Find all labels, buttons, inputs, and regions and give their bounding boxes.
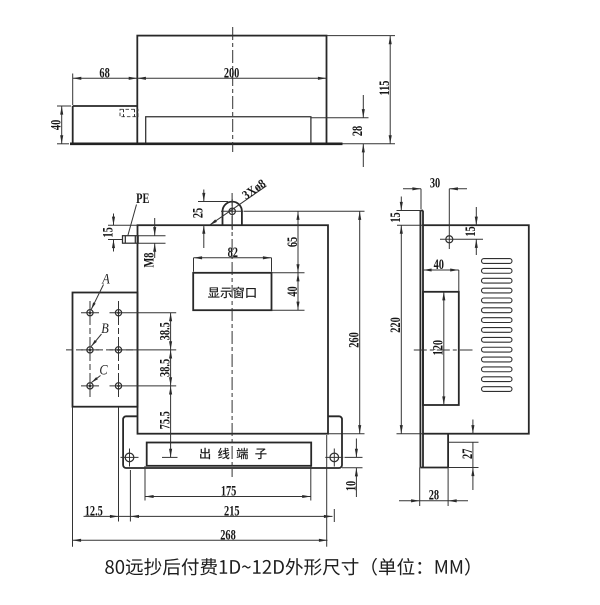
svg-text:200: 200 (224, 65, 240, 81)
svg-text:12.5: 12.5 (85, 503, 103, 519)
svg-text:15: 15 (462, 226, 478, 236)
svg-text:30: 30 (430, 175, 440, 191)
svg-text:82: 82 (228, 244, 238, 260)
svg-text:220: 220 (387, 317, 403, 333)
svg-text:215: 215 (224, 503, 240, 519)
svg-text:40: 40 (48, 120, 64, 130)
svg-text:25: 25 (190, 208, 206, 218)
svg-text:175: 175 (221, 483, 237, 499)
svg-text:40: 40 (434, 256, 444, 272)
svg-text:28: 28 (429, 487, 439, 503)
svg-text:27: 27 (459, 448, 475, 459)
svg-text:B: B (101, 320, 109, 336)
svg-text:15: 15 (100, 227, 116, 237)
svg-text:A: A (101, 270, 110, 286)
svg-text:120: 120 (430, 340, 446, 356)
svg-text:40: 40 (284, 286, 300, 296)
svg-text:10: 10 (343, 481, 359, 491)
svg-text:15: 15 (387, 212, 403, 222)
svg-text:268: 268 (220, 527, 236, 543)
svg-text:75.5: 75.5 (157, 411, 173, 429)
svg-text:PE: PE (136, 190, 149, 206)
svg-text:65: 65 (284, 237, 300, 247)
svg-text:115: 115 (376, 81, 392, 96)
svg-text:260: 260 (346, 332, 362, 348)
svg-text:68: 68 (99, 65, 109, 81)
svg-text:38.5: 38.5 (157, 359, 173, 377)
svg-text:M8: M8 (141, 253, 157, 268)
svg-text:C: C (99, 361, 108, 377)
svg-text:28: 28 (349, 126, 365, 136)
svg-text:38.5: 38.5 (157, 322, 173, 340)
